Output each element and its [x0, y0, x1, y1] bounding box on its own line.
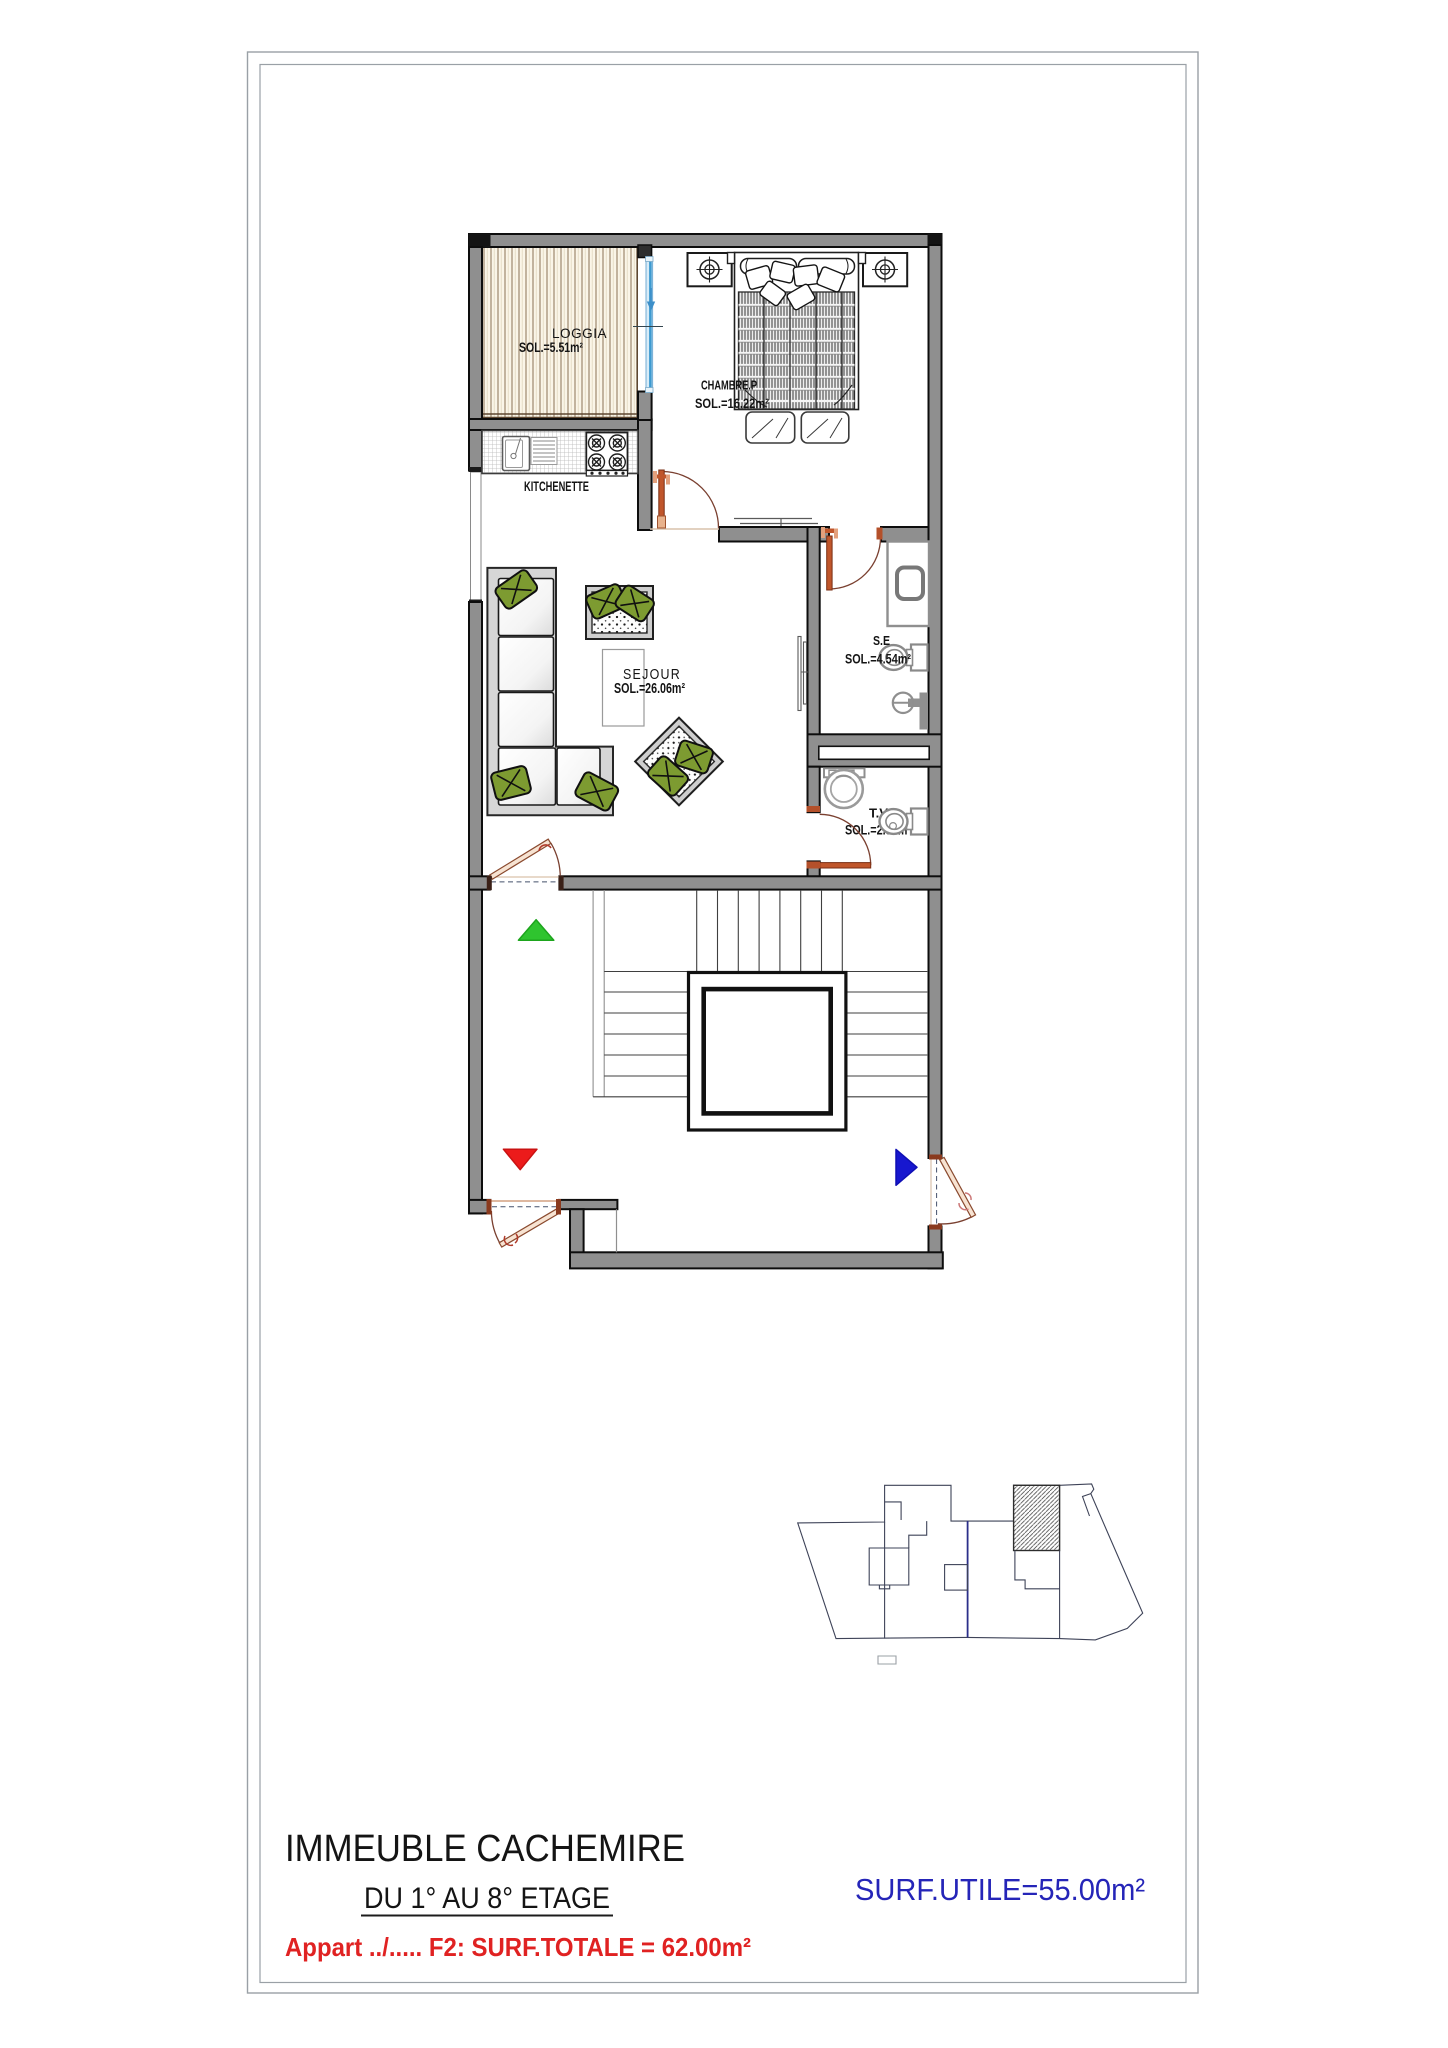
- svg-text:SOL.=16.22m²: SOL.=16.22m²: [695, 395, 769, 411]
- svg-text:LOGGIA: LOGGIA: [552, 325, 607, 341]
- svg-text:CHAMBRE.P: CHAMBRE.P: [701, 378, 757, 393]
- svg-text:DU 1° AU 8° ETAGE: DU 1° AU 8° ETAGE: [364, 1882, 610, 1915]
- svg-text:SOL.=5.51m²: SOL.=5.51m²: [519, 340, 583, 355]
- svg-text:IMMEUBLE CACHEMIRE: IMMEUBLE CACHEMIRE: [285, 1828, 685, 1870]
- svg-text:Appart ../..... F2: SURF.TOTAL: Appart ../..... F2: SURF.TOTALE = 62.00m…: [285, 1932, 751, 1962]
- svg-text:SOL.=26.06m²: SOL.=26.06m²: [614, 681, 685, 697]
- svg-text:SURF.UTILE=55.00m²: SURF.UTILE=55.00m²: [855, 1872, 1145, 1907]
- svg-text:SOL.=4.54m²: SOL.=4.54m²: [845, 652, 911, 667]
- svg-text:S.E: S.E: [873, 634, 890, 648]
- svg-text:KITCHENETTE: KITCHENETTE: [524, 478, 589, 494]
